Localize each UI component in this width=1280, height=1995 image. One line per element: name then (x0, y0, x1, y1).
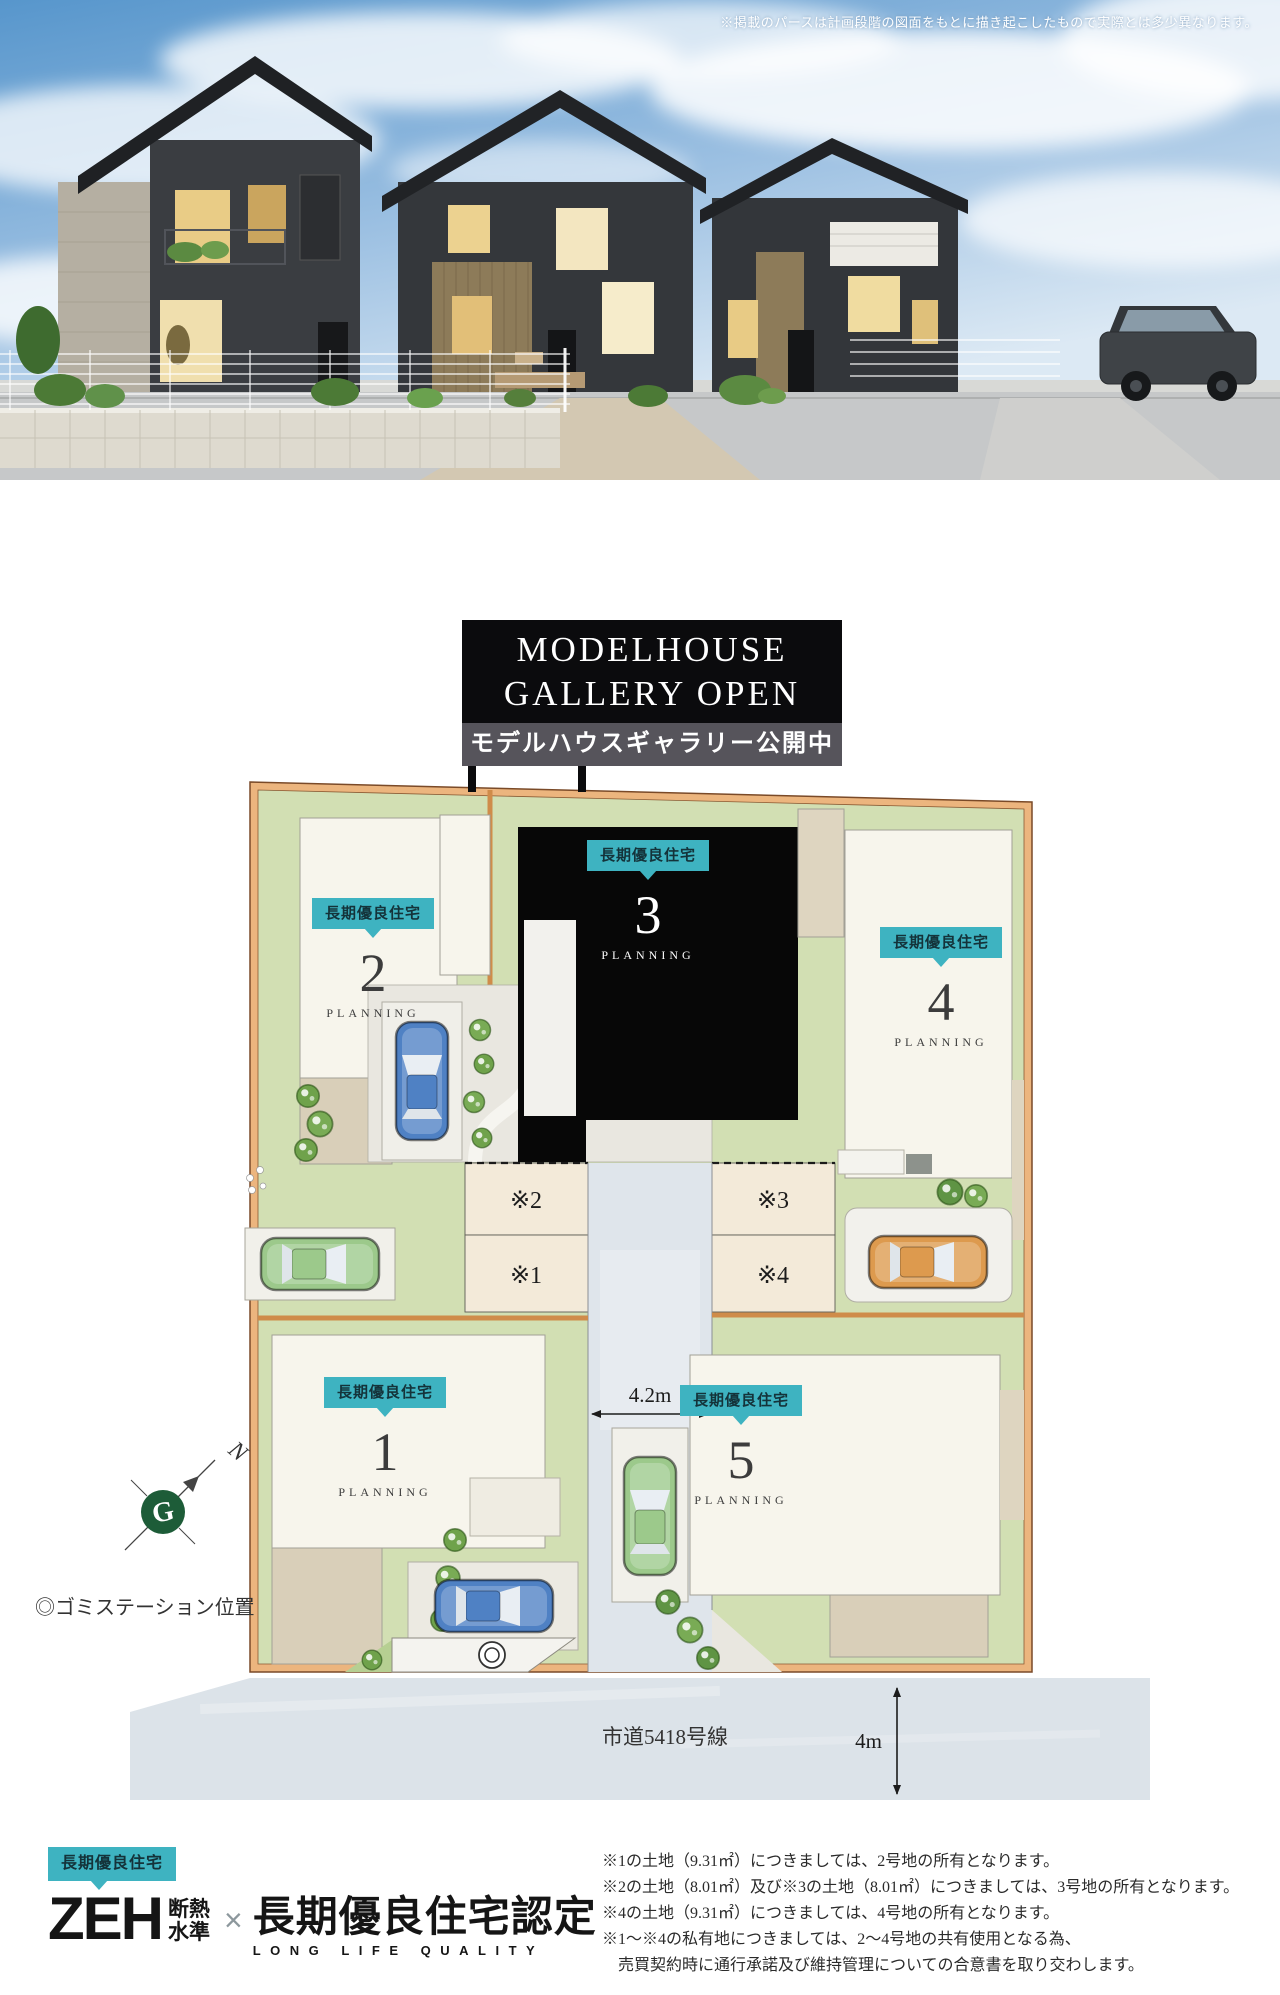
shared-land-label-1: ※1 (510, 1263, 542, 1289)
tree-icon (937, 1179, 962, 1204)
cert-subtitle: LONG LIFE QUALITY (253, 1943, 597, 1958)
cert-title: 長期優良住宅認定 (253, 1894, 597, 1940)
shared-land-label-2: ※2 (510, 1188, 542, 1214)
lot3-number: 3 (635, 888, 662, 942)
lot3-planning: PLANNING (601, 948, 694, 963)
note-line: ※2の土地（8.01㎡）及び※3の土地（8.01㎡）につきましては、3号地の所有… (602, 1875, 1239, 1901)
tree-icon (472, 1128, 492, 1148)
footer-notes: ※1の土地（9.31㎡）につきましては、2号地の所有となります。 ※2の土地（8… (602, 1849, 1239, 1979)
garbage-station-symbol (479, 1642, 505, 1668)
real-estate-flyer: ※掲載のパースは計画段階の図面をもとに描き起こしたもので実際とは多少異なります。… (0, 0, 1280, 1995)
lot3-badge: 長期優良住宅 (587, 840, 709, 871)
road-depth-label: 4m (855, 1729, 882, 1753)
banner-title-line1: MODELHOUSE (462, 628, 842, 672)
lot-label-3: 長期優良住宅 3 PLANNING (571, 840, 725, 963)
note-line: ※4の土地（9.31㎡）につきましては、4号地の所有となります。 (602, 1901, 1239, 1927)
banner-leader-right (578, 766, 586, 792)
lot-label-1: 長期優良住宅 1 PLANNING (303, 1377, 467, 1500)
compass: G N (125, 1436, 254, 1550)
shared-land-label-3: ※3 (757, 1188, 789, 1214)
car-icon (869, 1236, 987, 1288)
zeh-logo: ZEH (48, 1892, 162, 1946)
tree-icon (677, 1617, 702, 1642)
block-wall (0, 408, 560, 468)
lot1-badge: 長期優良住宅 (324, 1377, 446, 1408)
tree-icon (464, 1092, 485, 1113)
lot2-badge: 長期優良住宅 (312, 898, 434, 929)
gallery-open-banner: MODELHOUSE GALLERY OPEN モデルハウスギャラリー公開中 (462, 620, 842, 766)
tree-icon (697, 1647, 719, 1669)
zeh-sublabel: 断熱 水準 (168, 1898, 210, 1944)
car-icon (396, 1022, 448, 1140)
shared-land-label-4: ※4 (757, 1263, 789, 1289)
lot2-planning: PLANNING (326, 1006, 419, 1021)
tree-icon (444, 1529, 466, 1551)
certification-logos: 長期優良住宅 ZEH 断熱 水準 × 長期優良住宅認定 LONG LIFE QU… (48, 1847, 597, 1958)
lot1-planning: PLANNING (338, 1485, 431, 1500)
lot4-number: 4 (928, 975, 955, 1029)
banner-title: MODELHOUSE GALLERY OPEN (462, 620, 842, 723)
banner-title-line2: GALLERY OPEN (462, 672, 842, 716)
road-name-label: 市道5418号線 (602, 1725, 728, 1749)
lot4-badge: 長期優良住宅 (880, 927, 1002, 958)
tree-icon (965, 1185, 987, 1207)
lot2-number: 2 (360, 946, 387, 1000)
note-line: ※1の土地（9.31㎡）につきましては、2号地の所有となります。 (602, 1849, 1239, 1875)
lot5-badge: 長期優良住宅 (680, 1385, 802, 1416)
cert-logo: 長期優良住宅認定 LONG LIFE QUALITY (253, 1894, 597, 1958)
compass-north-label: N (222, 1436, 253, 1468)
multiply-symbol: × (224, 1904, 243, 1936)
tree-icon (307, 1111, 332, 1136)
lot5-planning: PLANNING (694, 1493, 787, 1508)
banner-leader-left (468, 766, 476, 792)
model-houses-illustration (0, 0, 1280, 480)
lot1-number: 1 (372, 1425, 399, 1479)
tree-icon (362, 1650, 382, 1670)
banner-subtitle: モデルハウスギャラリー公開中 (462, 723, 842, 766)
car-icon (261, 1238, 379, 1290)
zeh-sub-line1: 断熱 (168, 1898, 210, 1921)
footer-badge: 長期優良住宅 (48, 1847, 176, 1881)
tree-icon (474, 1054, 494, 1074)
garbage-note: ◎ゴミステーション位置 (35, 1596, 255, 1619)
hero-disclaimer: ※掲載のパースは計画段階の図面をもとに描き起こしたもので実際とは多少異なります。 (720, 12, 1258, 31)
hero-rendering: ※掲載のパースは計画段階の図面をもとに描き起こしたもので実際とは多少異なります。 (0, 0, 1280, 480)
logo-row: ZEH 断熱 水準 × 長期優良住宅認定 LONG LIFE QUALITY (48, 1892, 597, 1958)
zeh-sub-line2: 水準 (168, 1921, 210, 1944)
note-line: ※1～※4の私有地につきましては、2～4号地の共有使用となる為、 (602, 1927, 1239, 1953)
tree-icon (295, 1139, 317, 1161)
lot4-planning: PLANNING (894, 1035, 987, 1050)
tree-icon (297, 1085, 319, 1107)
car-icon (435, 1580, 553, 1632)
lot-label-2: 長期優良住宅 2 PLANNING (296, 898, 450, 1021)
tree-icon (470, 1020, 491, 1041)
lot-label-5: 長期優良住宅 5 PLANNING (658, 1385, 824, 1508)
lot5-number: 5 (728, 1433, 755, 1487)
lot-label-4: 長期優良住宅 4 PLANNING (858, 927, 1024, 1050)
note-line: 売買契約時に通行承諾及び維持管理についての合意書を取り交わします。 (602, 1953, 1239, 1979)
tree-icon (656, 1590, 680, 1614)
